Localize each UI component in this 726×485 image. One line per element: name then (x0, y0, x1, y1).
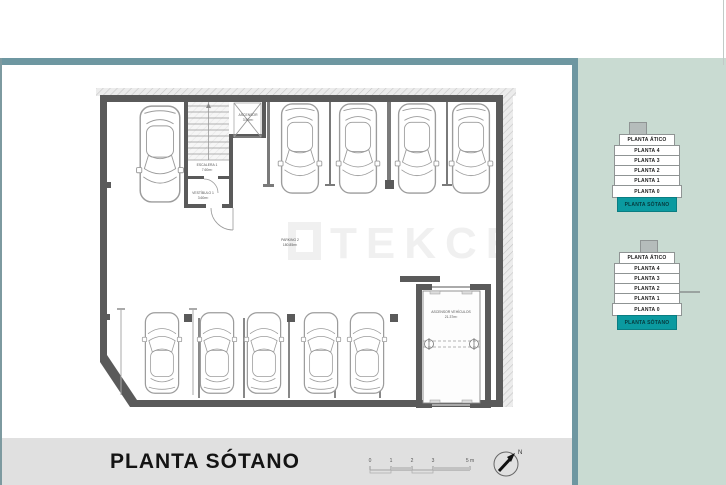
vehicle-lift: ASCENSOR VEHÍCULOS 21.37m² (416, 284, 491, 408)
stairs: ESCALERA 1 7.60m² (188, 102, 229, 172)
vestibule-area: 3.60m² (198, 196, 209, 200)
car (278, 104, 322, 193)
scale-tick-2: 2 (411, 458, 414, 464)
parking-area: 180.85m² (283, 243, 298, 247)
vehicle-lift-label: ASCENSOR VEHÍCULOS (431, 310, 471, 314)
stairs-label: ESCALERA 1 (197, 163, 218, 167)
car (142, 313, 181, 394)
car (137, 106, 184, 202)
floor-item-sotano-active[interactable]: PLANTA SÓTANO (617, 315, 677, 330)
floor-selector-top: PLANTA ÁTICO PLANTA 4 PLANTA 3 PLANTA 2 … (602, 122, 692, 212)
garage-door-arc (211, 208, 233, 230)
car (395, 104, 439, 193)
elevator-area: 3.50m² (243, 118, 254, 122)
scale-tick-1: 1 (390, 458, 393, 464)
parked-cars-bottom (142, 313, 386, 394)
north-label: N (518, 450, 522, 456)
stairs-area: 7.60m² (202, 168, 213, 172)
car (301, 313, 340, 394)
scale-tick-5m: 5 m (466, 458, 474, 464)
car (244, 313, 283, 394)
scale-tick-3: 3 (432, 458, 435, 464)
vestibule-label: VESTÍBULO 1 (192, 191, 214, 195)
stair-elevator-block: ASCENSOR 3.50m² ESCALERA 1 7.60m² VESTÍB… (184, 102, 266, 230)
vehicle-lift-area: 21.37m² (445, 315, 458, 319)
scale-tick-0: 0 (369, 458, 372, 464)
floor-item-sotano-active[interactable]: PLANTA SÓTANO (617, 197, 677, 212)
compass-icon: N (494, 450, 522, 476)
wall-hatch-right (503, 88, 513, 407)
elevator-label: ASCENSOR (238, 113, 258, 117)
page: { "colors": { "frame_teal": "#6e97a1", "… (0, 0, 726, 485)
watermark: TEKCE (288, 219, 524, 268)
page-title: PLANTA SÓTANO (110, 450, 300, 474)
car (449, 104, 493, 193)
scale-bar: 0 1 2 3 5 m (369, 458, 475, 473)
wall-hatch-top (96, 88, 516, 96)
watermark-text: TEKCE (330, 219, 524, 268)
floor-selector-bottom: PLANTA ÁTICO PLANTA 4 PLANTA 3 PLANTA 2 … (602, 240, 692, 330)
car (336, 104, 380, 193)
car (347, 313, 386, 394)
parking-label: PARKING 2 (281, 238, 299, 242)
elevator: ASCENSOR 3.50m² (234, 103, 261, 137)
car (197, 313, 236, 394)
